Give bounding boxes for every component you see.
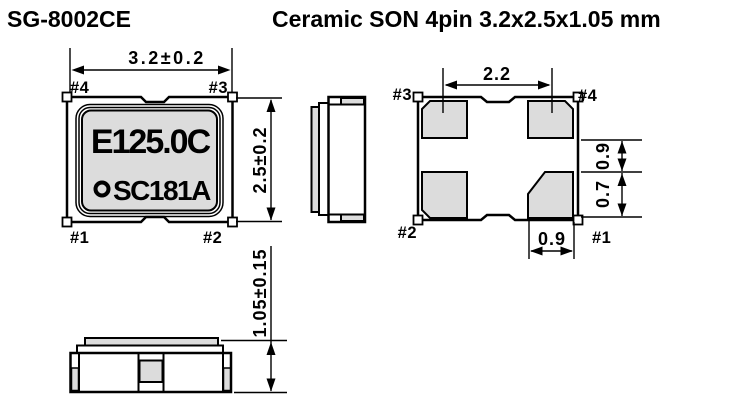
top-view: 3.2±0.2 #4 #3 E125.0C SC181A #1 #2 2.5±0… — [63, 48, 283, 247]
arrowhead — [618, 159, 627, 172]
bottom-view-pad-height-dimension: 0.7 — [581, 173, 642, 217]
pin-label-2: #2 — [203, 229, 222, 247]
marking-lot-code: SC181A — [113, 175, 211, 206]
front-view: 1.05±0.15 — [71, 246, 288, 393]
pad-4 — [528, 101, 573, 138]
arrowhead — [267, 99, 276, 112]
arrowhead — [618, 174, 627, 187]
pin-label-3: #3 — [393, 86, 412, 104]
arrowhead — [218, 66, 231, 75]
pad-3 — [422, 101, 467, 138]
side-view-lid-inner — [319, 103, 329, 215]
arrowhead — [618, 204, 627, 217]
front-view-terminal-left — [72, 368, 79, 391]
dim-height-label: 2.5±0.2 — [250, 127, 270, 194]
corner-notch — [228, 218, 237, 227]
arrowhead — [445, 81, 458, 90]
corner-notch — [414, 93, 423, 102]
header: SG-8002CE Ceramic SON 4pin 3.2x2.5x1.05 … — [7, 6, 661, 32]
package-title: Ceramic SON 4pin 3.2x2.5x1.05 mm — [272, 6, 661, 32]
arrowhead — [72, 66, 85, 75]
pad-2 — [422, 172, 467, 218]
pin-label-1: #1 — [70, 229, 89, 247]
pin-label-3: #3 — [209, 79, 228, 97]
bottom-view-pad-gap-dimension: 0.9 — [581, 140, 642, 172]
top-view-height-dimension: 2.5±0.2 — [236, 98, 282, 222]
side-view-terminal-top — [341, 98, 364, 105]
arrowhead — [618, 141, 627, 154]
bottom-view: #3 #4 #2 #1 2.2 0.9 0.7 — [393, 64, 642, 259]
arrowhead — [267, 379, 276, 392]
package-outline-drawing: SG-8002CE Ceramic SON 4pin 3.2x2.5x1.05 … — [0, 0, 738, 410]
side-view-terminal-bottom — [341, 215, 364, 222]
datasheet-page: SG-8002CE Ceramic SON 4pin 3.2x2.5x1.05 … — [0, 0, 738, 410]
pin-label-4: #4 — [578, 87, 598, 105]
dim-total-height-label: 1.05±0.15 — [250, 249, 270, 338]
side-view — [312, 97, 366, 222]
dim-pad-width-label: 0.9 — [538, 229, 566, 249]
arrowhead — [538, 81, 551, 90]
marking-frequency-code: E125.0C — [91, 123, 211, 161]
pin-label-1: #1 — [592, 229, 611, 247]
corner-notch — [63, 93, 72, 102]
model-number: SG-8002CE — [7, 6, 131, 32]
arrowhead — [267, 342, 276, 355]
arrowhead — [267, 208, 276, 221]
side-view-body — [329, 97, 366, 222]
corner-notch — [228, 93, 237, 102]
bottom-view-pad-width-dimension: 0.9 — [529, 219, 574, 259]
front-view-center-pad — [140, 361, 163, 383]
corner-notch — [63, 218, 72, 227]
dim-pad-gap-label: 0.9 — [593, 142, 613, 170]
front-view-terminal-right — [224, 368, 231, 391]
front-view-lid-top — [85, 338, 218, 346]
dim-width-label: 3.2±0.2 — [128, 48, 205, 68]
pin-label-4: #4 — [70, 79, 90, 97]
dim-pad-pitch-label: 2.2 — [483, 64, 511, 84]
dim-pad-height-label: 0.7 — [593, 180, 613, 208]
pin-label-2: #2 — [398, 224, 417, 242]
